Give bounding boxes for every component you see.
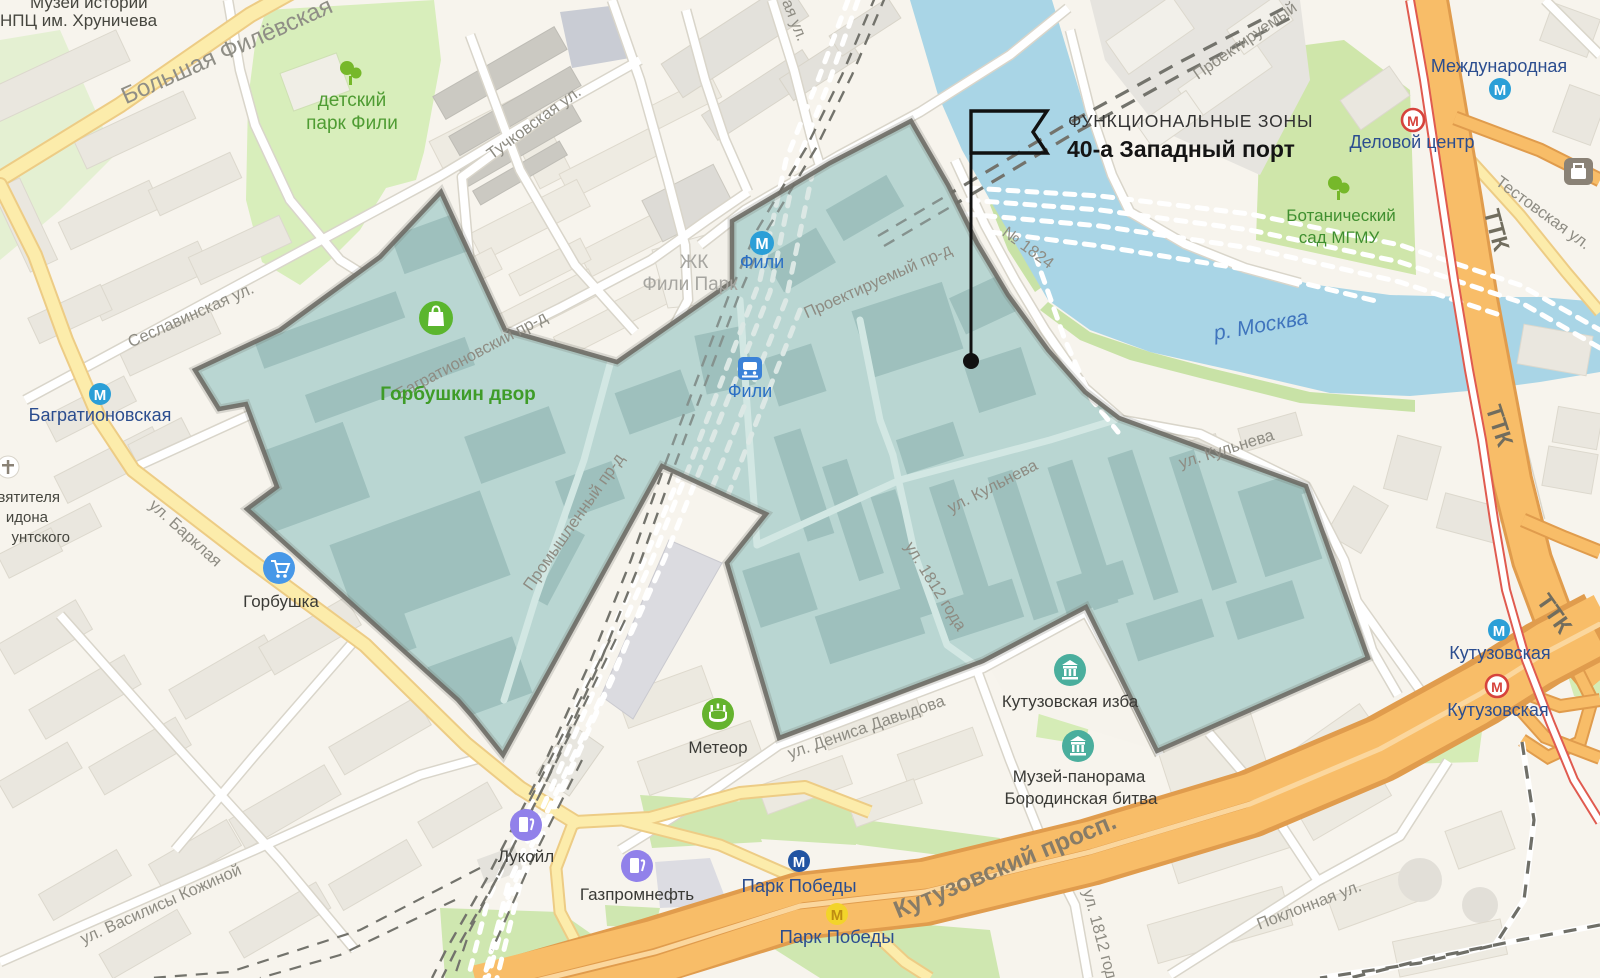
svg-text:Фили Парк: Фили Парк — [642, 274, 738, 295]
svg-text:Международная: Международная — [1431, 56, 1567, 76]
svg-text:М: М — [755, 236, 768, 253]
svg-text:Кутузовская: Кутузовская — [1447, 700, 1548, 720]
svg-text:М: М — [1494, 82, 1507, 99]
svg-text:Парк Победы: Парк Победы — [779, 926, 894, 947]
svg-text:Кутузовская изба: Кутузовская изба — [1002, 692, 1139, 711]
svg-text:сад МГМУ: сад МГМУ — [1299, 228, 1380, 247]
svg-text:Фили: Фили — [728, 381, 772, 401]
svg-text:детский: детский — [318, 90, 387, 111]
svg-text:М: М — [1491, 679, 1503, 695]
svg-text:М: М — [1493, 623, 1506, 640]
svg-text:идона: идона — [6, 509, 49, 526]
svg-text:Фили: Фили — [740, 252, 784, 272]
svg-text:Газпромнефть: Газпромнефть — [580, 885, 694, 904]
svg-text:М: М — [831, 907, 844, 924]
svg-text:парк Фили: парк Фили — [306, 113, 398, 134]
svg-text:святителя: святителя — [0, 489, 60, 506]
svg-text:Лукойл: Лукойл — [498, 847, 554, 866]
svg-text:Багратионовская: Багратионовская — [29, 405, 172, 425]
svg-text:М: М — [793, 854, 806, 871]
svg-text:Музей-панорама: Музей-панорама — [1013, 767, 1146, 786]
svg-text:Бородинская битва: Бородинская битва — [1005, 789, 1159, 808]
svg-text:Деловой центр: Деловой центр — [1349, 132, 1474, 152]
svg-text:ЖК: ЖК — [680, 252, 709, 273]
svg-text:НПЦ им. Хруничева: НПЦ им. Хруничева — [0, 11, 158, 30]
svg-text:Метеор: Метеор — [688, 738, 747, 757]
svg-text:М: М — [94, 387, 107, 404]
svg-text:40-а Западный порт: 40-а Западный порт — [1067, 136, 1295, 162]
svg-text:Парк Победы: Парк Победы — [741, 875, 856, 896]
svg-text:М: М — [1407, 113, 1419, 129]
svg-text:Ботанический: Ботанический — [1286, 206, 1395, 225]
svg-text:Кутузовская: Кутузовская — [1449, 643, 1550, 663]
svg-text:Горбушка: Горбушка — [243, 592, 319, 611]
svg-text:ФУНКЦИОНАЛЬНЫЕ ЗОНЫ: ФУНКЦИОНАЛЬНЫЕ ЗОНЫ — [1068, 111, 1313, 131]
svg-text:унтского: унтского — [11, 529, 70, 546]
svg-text:Горбушкин двор: Горбушкин двор — [380, 384, 536, 405]
